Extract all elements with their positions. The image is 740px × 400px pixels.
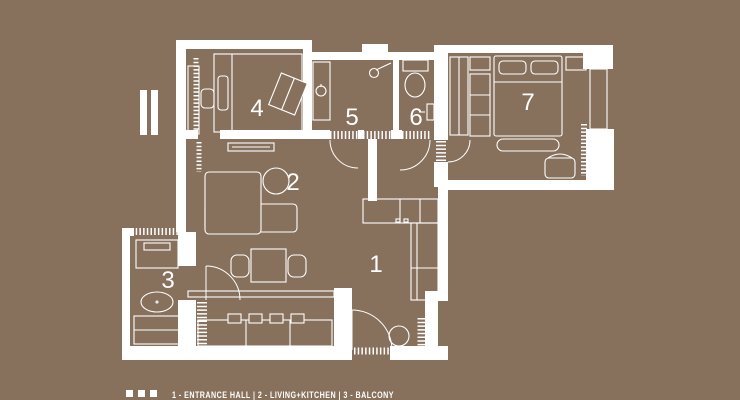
room-label-1: 1 <box>369 251 382 278</box>
room-label-3: 3 <box>161 267 174 294</box>
stove-burner <box>249 314 262 323</box>
floor-plan: 1 2 3 4 5 6 7 1 - ENTRANCE HALL | 2 - LI… <box>0 0 740 400</box>
legend-bullet <box>126 390 133 397</box>
room-label-5: 5 <box>345 104 358 131</box>
floor-plan-screen: 1 2 3 4 5 6 7 1 - ENTRANCE HALL | 2 - LI… <box>0 0 740 400</box>
stove-burner <box>228 314 241 323</box>
room-label-4: 4 <box>250 95 263 122</box>
legend-bullet <box>138 390 145 397</box>
legend-bullet <box>150 390 157 397</box>
room-label-6: 6 <box>409 104 422 131</box>
stove-burner <box>270 314 283 323</box>
room-label-2: 2 <box>286 169 299 196</box>
room-label-7: 7 <box>521 89 534 116</box>
stove-burner <box>291 314 304 323</box>
sofa-main <box>205 172 261 234</box>
legend-text: 1 - ENTRANCE HALL | 2 - LIVING+KITCHEN |… <box>172 390 394 400</box>
